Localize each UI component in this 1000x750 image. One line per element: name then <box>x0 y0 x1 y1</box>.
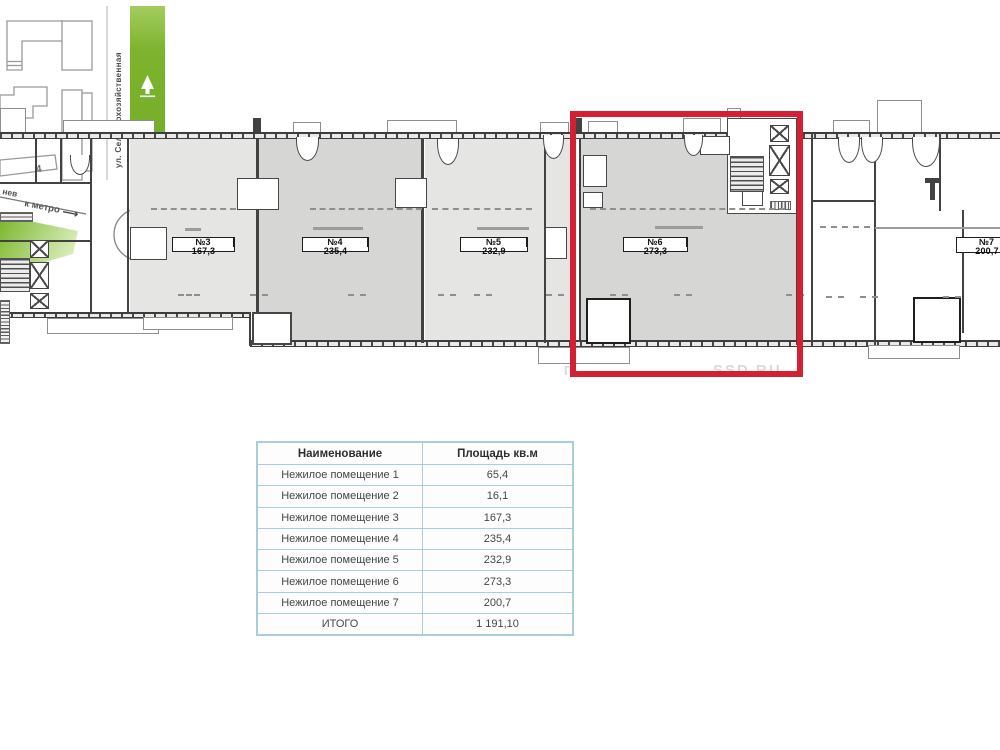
vestibule-premise7 <box>913 297 961 343</box>
dashed-line <box>151 208 236 210</box>
elevator-shaft-icon <box>30 293 49 309</box>
premise-area: 232,9 <box>461 247 527 256</box>
wall-line <box>875 227 1000 229</box>
row-name: Нежилое помещение 1 <box>258 465 423 485</box>
row-name: Нежилое помещение 7 <box>258 593 423 613</box>
dashed-line <box>820 226 870 228</box>
row-area: 167,3 <box>423 512 572 524</box>
premise-5-label: №5 232,9 <box>460 237 528 252</box>
wall-line <box>811 133 813 345</box>
gray-bar <box>313 227 363 230</box>
door-arc <box>838 137 860 163</box>
wall-step <box>249 312 251 346</box>
dashed-line <box>250 294 268 296</box>
interior-room <box>130 227 167 260</box>
window-sill <box>0 212 33 222</box>
table-total-row: ИТОГО 1 191,10 <box>258 613 572 634</box>
table-row: Нежилое помещение 1 65,4 <box>258 464 572 485</box>
table-row: Нежилое помещение 3 167,3 <box>258 507 572 528</box>
row-name: Нежилое помещение 5 <box>258 550 423 570</box>
row-name: Нежилое помещение 6 <box>258 571 423 591</box>
gray-bar <box>185 228 201 231</box>
row-area: 235,4 <box>423 533 572 545</box>
premise-6-highlight <box>570 111 803 377</box>
dashed-line <box>943 296 961 298</box>
wall-line <box>90 138 92 312</box>
wall-line <box>35 138 37 182</box>
premise-3-label: №3 167,3 <box>172 237 235 252</box>
wall-line <box>0 182 90 184</box>
total-label: ИТОГО <box>258 614 423 634</box>
row-area: 200,7 <box>423 597 572 609</box>
dashed-line <box>348 294 366 296</box>
table-row: Нежилое помещение 7 200,7 <box>258 592 572 613</box>
door-arc <box>70 155 90 175</box>
parapet-outline <box>877 100 922 133</box>
table-row: Нежилое помещение 5 232,9 <box>258 549 572 570</box>
dashed-line <box>826 296 844 298</box>
dashed-line <box>310 208 422 210</box>
premise-area: 200,7 <box>957 247 1000 256</box>
wall-line <box>60 138 62 182</box>
entry-bumpout <box>252 312 292 345</box>
dashed-line <box>474 294 492 296</box>
table-row: Нежилое помещение 2 16,1 <box>258 485 572 506</box>
row-name: Нежилое помещение 2 <box>258 486 423 506</box>
total-area: 1 191,10 <box>423 618 572 630</box>
premise-4-label: №4 235,4 <box>302 237 369 252</box>
header-area: Площадь кв.м <box>423 448 572 460</box>
elevator-shaft-icon <box>30 240 49 258</box>
dashed-line <box>546 294 564 296</box>
column <box>930 183 935 200</box>
row-area: 16,1 <box>423 490 572 502</box>
premise-7-label: №7 200,7 <box>956 237 1000 253</box>
table-row: Нежилое помещение 6 273,3 <box>258 570 572 591</box>
gray-bar <box>477 227 529 230</box>
table-header-row: Наименование Площадь кв.м <box>258 443 572 464</box>
dashed-line <box>438 294 456 296</box>
area-table: Наименование Площадь кв.м Нежилое помеще… <box>256 441 574 636</box>
wall-premise4-5 <box>421 138 424 343</box>
dashed-line <box>432 208 532 210</box>
terrace-outline <box>868 345 960 359</box>
table-row: Нежилое помещение 4 235,4 <box>258 528 572 549</box>
row-area: 65,4 <box>423 469 572 481</box>
interior-room <box>237 178 279 210</box>
wall-line <box>812 200 875 202</box>
door-arc <box>861 137 883 163</box>
dashed-line <box>178 294 200 296</box>
floorplan-page: №3 167,3 №4 235,4 №5 232,9 №6 273,3 №7 2… <box>0 0 1000 750</box>
wall-line <box>874 160 876 345</box>
interior-room <box>545 227 567 259</box>
floor-plan: №3 167,3 №4 235,4 №5 232,9 №6 273,3 №7 2… <box>0 0 1000 400</box>
row-name: Нежилое помещение 3 <box>258 508 423 528</box>
staircase-left <box>0 258 30 292</box>
dashed-line <box>860 296 878 298</box>
terrace-outline <box>143 317 233 330</box>
row-name: Нежилое помещение 4 <box>258 529 423 549</box>
row-area: 273,3 <box>423 576 572 588</box>
premise-area: 167,3 <box>173 247 234 256</box>
premise-area: 235,4 <box>303 247 368 256</box>
wall-line <box>127 138 129 312</box>
elevator-shaft-icon <box>30 262 49 289</box>
door-arc <box>912 137 940 167</box>
parapet-outline <box>0 108 26 133</box>
row-area: 232,9 <box>423 554 572 566</box>
header-name: Наименование <box>258 443 423 464</box>
interior-room <box>395 178 427 208</box>
premise-3-region <box>130 138 257 312</box>
ladder-hatch <box>0 300 10 344</box>
